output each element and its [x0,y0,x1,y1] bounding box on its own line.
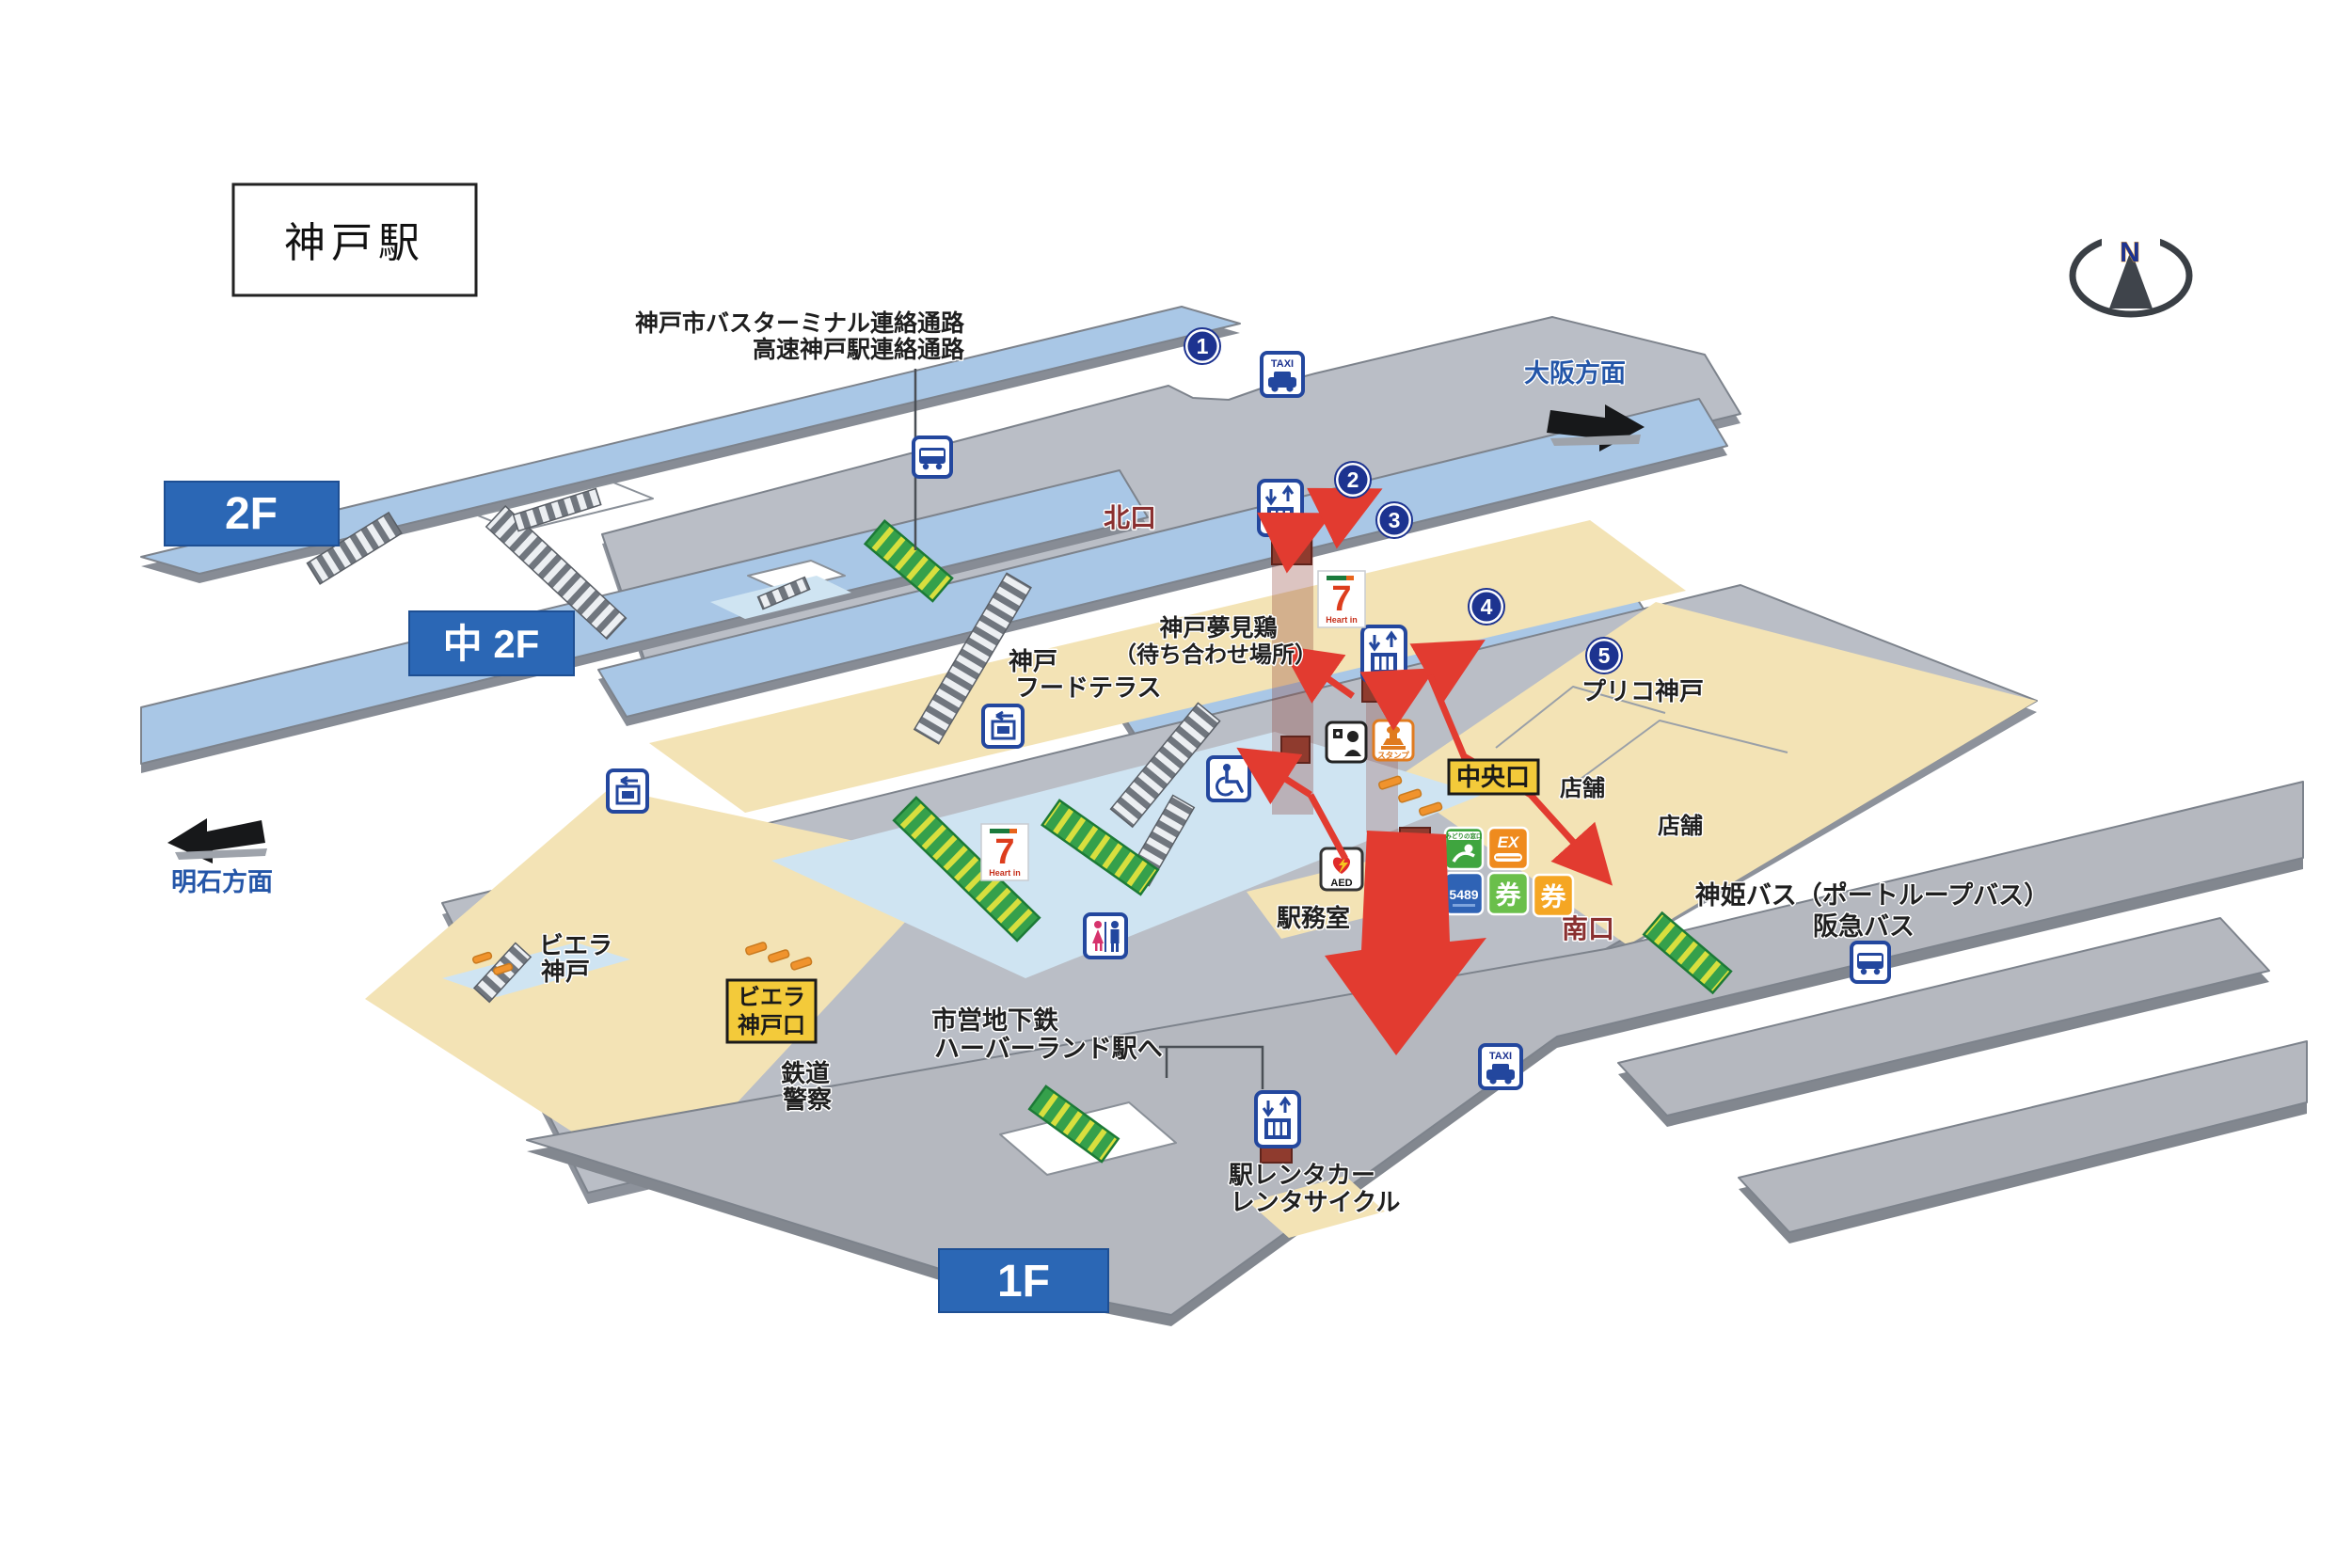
seven-eleven-icon-upper [1318,571,1365,627]
elevator-icon-mid [1362,626,1406,681]
floor-m2f-label: 中 2F [443,622,540,666]
akashi-direction-label: 明石方面 [171,867,273,896]
ticket-machine-orange-icon: 券 [1534,875,1573,916]
ticket-machine-green-label: 券 [1496,880,1522,910]
rentacycle-label-2: レンタサイクル [1231,1188,1401,1216]
subway-label-2: ハーバーランド駅へ [934,1035,1163,1063]
page-title: 神戸駅 [284,220,425,266]
title-box: 神戸駅 [233,184,476,295]
elevator-icon-north [1259,481,1302,535]
viere-gate-label-2: 神戸口 [738,1013,805,1038]
elevator-icon-south [1256,1092,1299,1147]
bus-terminal-link-label: 神戸市バスターミナル連絡通路 [635,309,965,337]
viere-gate-box: ビエラ 神戸口 [727,980,816,1042]
ex-icon-label: EX [1498,833,1520,851]
prico-kobe-label: プリコ神戸 [1581,677,1704,705]
compass-icon: N [2073,231,2189,314]
kosoku-kobe-link-label: 高速神戸駅連絡通路 [753,336,965,363]
point-number: 1 [1197,334,1209,358]
stamp-icon-label: スタンプ [1377,751,1409,760]
viere-kobe-label-2: 神戸 [541,958,590,986]
point-badge-1: 1 [1184,328,1220,364]
floor-badge-1f: 1F [939,1249,1108,1312]
shop-label-b: 店舗 [1658,814,1703,839]
taxi-icon-south [1480,1045,1521,1088]
floor-geometry [141,307,2307,1326]
taxi-icon-north [1262,353,1303,396]
food-terrace-label-2: フードテラス [1015,673,1161,702]
meeting-point-label-2: （待ち合わせ場所） [1114,641,1317,668]
rentacar-label-1: 駅レンタカー [1229,1161,1375,1189]
central-exit-box: 中央口 [1449,760,1538,794]
subway-label-1: 市営地下鉄 [931,1006,1058,1035]
photo-booth-icon [1327,722,1366,762]
phone-5489-icon: 5489 [1445,873,1483,914]
midori-header-label: みどりの窓口 [1446,832,1483,840]
point-badge-5: 5 [1586,638,1622,673]
ticket-machine-green-icon: 券 [1488,873,1528,914]
railway-police-label-2: 警察 [783,1085,833,1114]
toilet-icon [1085,914,1126,958]
viere-gate-label-1: ビエラ [738,985,805,1010]
point-number: 5 [1598,643,1611,668]
ticket-machine-orange-label: 券 [1541,882,1567,911]
floor-2f-label: 2F [225,489,278,539]
phone-5489-label: 5489 [1449,887,1478,902]
shinki-bus-label: 神姫バス（ポートループバス） [1695,881,2049,910]
coin-locker-icon-2 [608,770,647,812]
stamp-icon: スタンプ [1374,721,1413,760]
point-number: 2 [1347,467,1359,492]
north-exit-label: 北口 [1104,503,1156,532]
floor-1f-label: 1F [997,1257,1050,1307]
ex-ticket-icon: EX [1488,828,1528,869]
point-number: 3 [1389,508,1401,532]
meeting-point-label-1: 神戸夢見鶏 [1159,615,1277,641]
food-terrace-label-1: 神戸 [1009,647,1057,675]
bus-stop-icon-north [914,437,951,477]
elevator-cab [1281,736,1310,763]
station-map-page: TAXI 7 Heart in 神戸駅 [0,0,2352,1568]
point-number: 4 [1481,594,1493,619]
point-badge-2: 2 [1335,462,1371,498]
station-office-label: 駅務室 [1277,904,1350,932]
hankyu-bus-label: 阪急バス [1813,911,1915,941]
point-badge-3: 3 [1376,502,1412,538]
south-exit-label: 南口 [1562,914,1614,943]
coin-locker-icon-1 [983,705,1023,747]
wheelchair-icon [1208,757,1249,800]
floor-badge-m2f: 中 2F [409,611,574,675]
point-badge-4: 4 [1469,589,1504,625]
viere-kobe-label-1: ビエラ [539,931,612,959]
shop-label-a: 店舗 [1560,776,1605,801]
central-exit-label: 中央口 [1456,763,1530,791]
elevator-cab [1272,532,1311,564]
railway-police-label-1: 鉄道 [781,1059,830,1087]
floor-badge-2f: 2F [165,482,339,546]
seven-eleven-icon-lower [981,824,1028,880]
ticket-office-icon: みどりの窓口 [1445,828,1483,869]
aed-icon-label: AED [1330,878,1352,889]
bus-stop-icon-south [1851,942,1889,982]
kobe-station-map: TAXI 7 Heart in 神戸駅 [0,0,2352,1568]
osaka-direction-label: 大阪方面 [1524,358,1626,388]
compass-north-label: N [2120,237,2140,268]
